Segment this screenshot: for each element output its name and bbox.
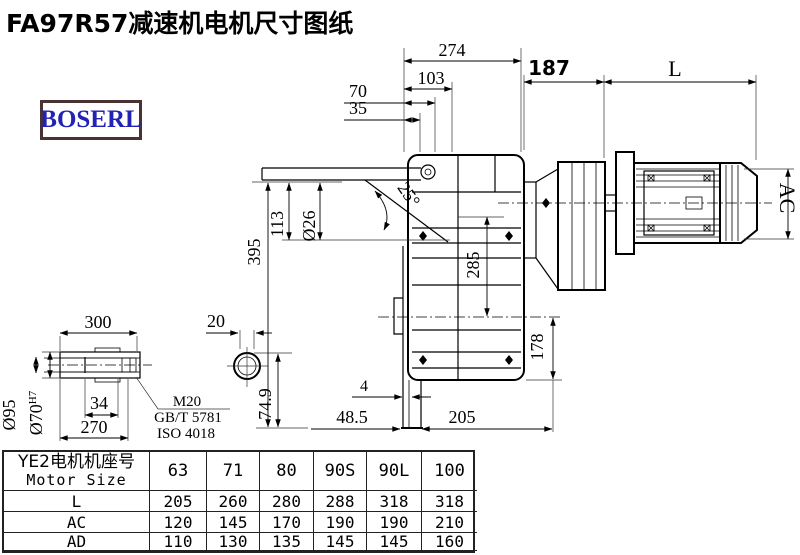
- table-header-size: 63: [150, 452, 207, 491]
- dim-74-9: 74.9: [255, 388, 275, 420]
- dim-25deg: 25°: [393, 179, 424, 211]
- table-cell: 190: [314, 512, 367, 533]
- row-label-L: L: [4, 491, 150, 512]
- dim-AC: AC: [775, 183, 800, 214]
- table-header-motor-size: YE2电机机座号 Motor Size: [4, 452, 150, 491]
- row-label-AC: AC: [4, 512, 150, 533]
- table-cell: 210: [422, 512, 477, 533]
- extension-lines: [42, 48, 794, 441]
- table-cell: 205: [150, 491, 207, 512]
- dim-205: 205: [449, 407, 476, 427]
- table-cell: 130: [207, 533, 260, 551]
- table-header-size: 90S: [314, 452, 367, 491]
- dim-20: 20: [207, 311, 225, 331]
- dim-48-5: 48.5: [336, 407, 368, 427]
- dim-103: 103: [418, 68, 445, 88]
- table-cell: 190: [367, 512, 422, 533]
- table-cell: 170: [260, 512, 314, 533]
- table-cell: 110: [150, 533, 207, 551]
- table-cell: 260: [207, 491, 260, 512]
- dim-L: L: [668, 56, 681, 81]
- row-label-AD: AD: [4, 533, 150, 551]
- thread-spec-m20: M20: [173, 394, 201, 410]
- table-cell: 135: [260, 533, 314, 551]
- dim-dia95: Ø95: [0, 400, 19, 431]
- dimension-lines: [36, 61, 788, 438]
- table-cell: 160: [422, 533, 477, 551]
- table-cell: 145: [207, 512, 260, 533]
- dim-dia70h7: Ø70H7: [26, 390, 46, 435]
- hollow-shaft-detail: [44, 348, 152, 382]
- motor-size-table: YE2电机机座号 Motor Size 63 71 80 90S 90L 100…: [2, 450, 475, 553]
- dimension-sheet: FA97R57减速机电机尺寸图纸 BOSERL: [0, 0, 800, 555]
- table-cell: 318: [422, 491, 477, 512]
- table-cell: 318: [367, 491, 422, 512]
- dim-4: 4: [360, 378, 368, 395]
- table-header-size: 71: [207, 452, 260, 491]
- dim-35: 35: [349, 98, 367, 118]
- dim-dia26: Ø26: [299, 211, 319, 242]
- dim-285: 285: [463, 252, 483, 279]
- table-header-size: 100: [422, 452, 477, 491]
- dim-270: 270: [81, 417, 108, 437]
- thread-spec-gbt: GB/T 5781: [154, 410, 222, 426]
- bolt-diamond-icon: [419, 231, 513, 365]
- motor-side-view: [498, 152, 772, 254]
- table-header-size: 90L: [367, 452, 422, 491]
- thread-spec-iso: ISO 4018: [157, 426, 215, 442]
- table-cell: 120: [150, 512, 207, 533]
- dim-34: 34: [90, 393, 108, 413]
- dim-178: 178: [527, 334, 547, 361]
- table-cell: 288: [314, 491, 367, 512]
- table-cell: 145: [367, 533, 422, 551]
- dim-274: 274: [439, 40, 466, 60]
- table-cell: 280: [260, 491, 314, 512]
- r57-reducer: [524, 162, 616, 290]
- dim-300: 300: [85, 312, 112, 332]
- table-header-size: 80: [260, 452, 314, 491]
- dim-187: 187: [528, 56, 570, 80]
- table-cell: 145: [314, 533, 367, 551]
- dim-395: 395: [244, 239, 264, 266]
- dim-113: 113: [267, 211, 287, 237]
